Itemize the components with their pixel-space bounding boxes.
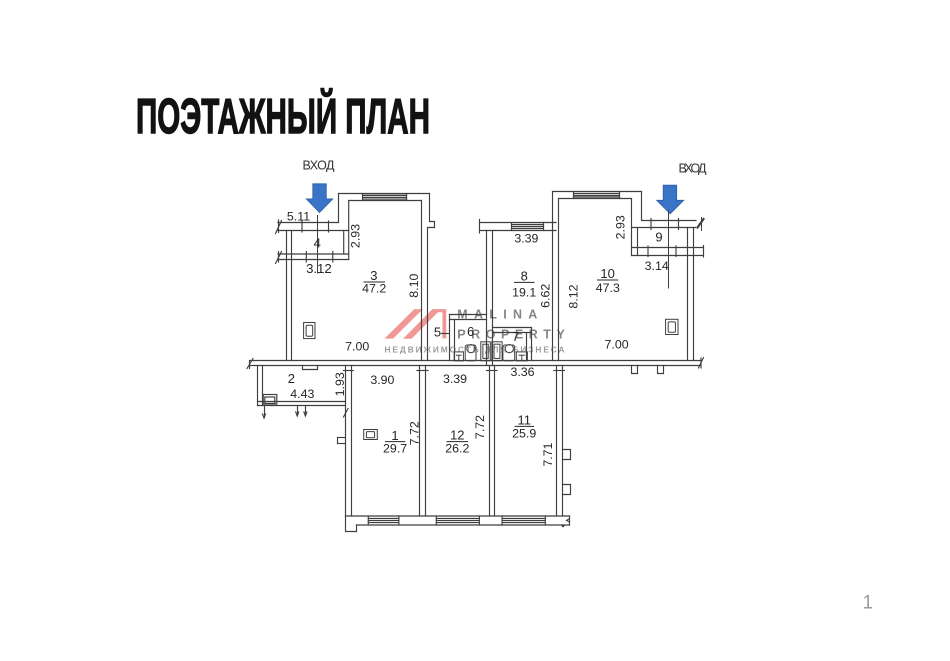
svg-text:3.39: 3.39 [514, 231, 538, 245]
svg-text:3.12: 3.12 [306, 261, 332, 276]
svg-text:8.10: 8.10 [407, 274, 421, 298]
svg-text:9: 9 [655, 230, 662, 245]
svg-text:47.3: 47.3 [596, 281, 620, 295]
svg-text:6: 6 [467, 324, 474, 339]
svg-text:7.72: 7.72 [473, 415, 487, 439]
svg-text:12: 12 [450, 428, 464, 443]
svg-text:8: 8 [521, 268, 528, 283]
svg-text:1: 1 [391, 428, 398, 443]
svg-text:5.11: 5.11 [287, 210, 310, 224]
svg-text:29.7: 29.7 [383, 442, 407, 456]
svg-text:7.00: 7.00 [605, 337, 629, 351]
svg-text:3.90: 3.90 [370, 373, 394, 387]
svg-text:1: 1 [863, 593, 874, 614]
svg-text:2: 2 [288, 371, 295, 386]
svg-text:3.14: 3.14 [645, 259, 669, 273]
svg-text:1.93: 1.93 [333, 372, 347, 396]
svg-text:5: 5 [434, 325, 441, 340]
svg-text:19.1: 19.1 [512, 286, 536, 300]
svg-text:ПОЭТАЖНЫЙ ПЛАН: ПОЭТАЖНЫЙ ПЛАН [136, 89, 430, 144]
svg-text:ВХОД: ВХОД [679, 162, 708, 176]
svg-text:4: 4 [314, 236, 321, 251]
svg-text:3.36: 3.36 [510, 365, 534, 379]
svg-text:3.39: 3.39 [443, 372, 467, 386]
svg-text:8.12: 8.12 [567, 284, 581, 308]
svg-text:7.71: 7.71 [541, 442, 555, 466]
svg-text:6.62: 6.62 [539, 284, 553, 308]
svg-text:7.72: 7.72 [408, 421, 422, 445]
svg-text:25.9: 25.9 [512, 426, 536, 440]
svg-text:2.93: 2.93 [614, 215, 628, 239]
svg-text:НЕДВИЖИМОСТЬ ДЛЯ БИЗНЕСА: НЕДВИЖИМОСТЬ ДЛЯ БИЗНЕСА [385, 344, 565, 354]
svg-text:4.43: 4.43 [290, 387, 314, 401]
svg-text:47.2: 47.2 [362, 282, 386, 296]
svg-text:7.00: 7.00 [345, 340, 369, 354]
svg-text:26.2: 26.2 [445, 442, 469, 456]
svg-text:7: 7 [512, 329, 519, 344]
svg-text:2.93: 2.93 [349, 224, 363, 248]
svg-text:ВХОД: ВХОД [303, 159, 336, 173]
svg-text:10: 10 [600, 266, 614, 281]
